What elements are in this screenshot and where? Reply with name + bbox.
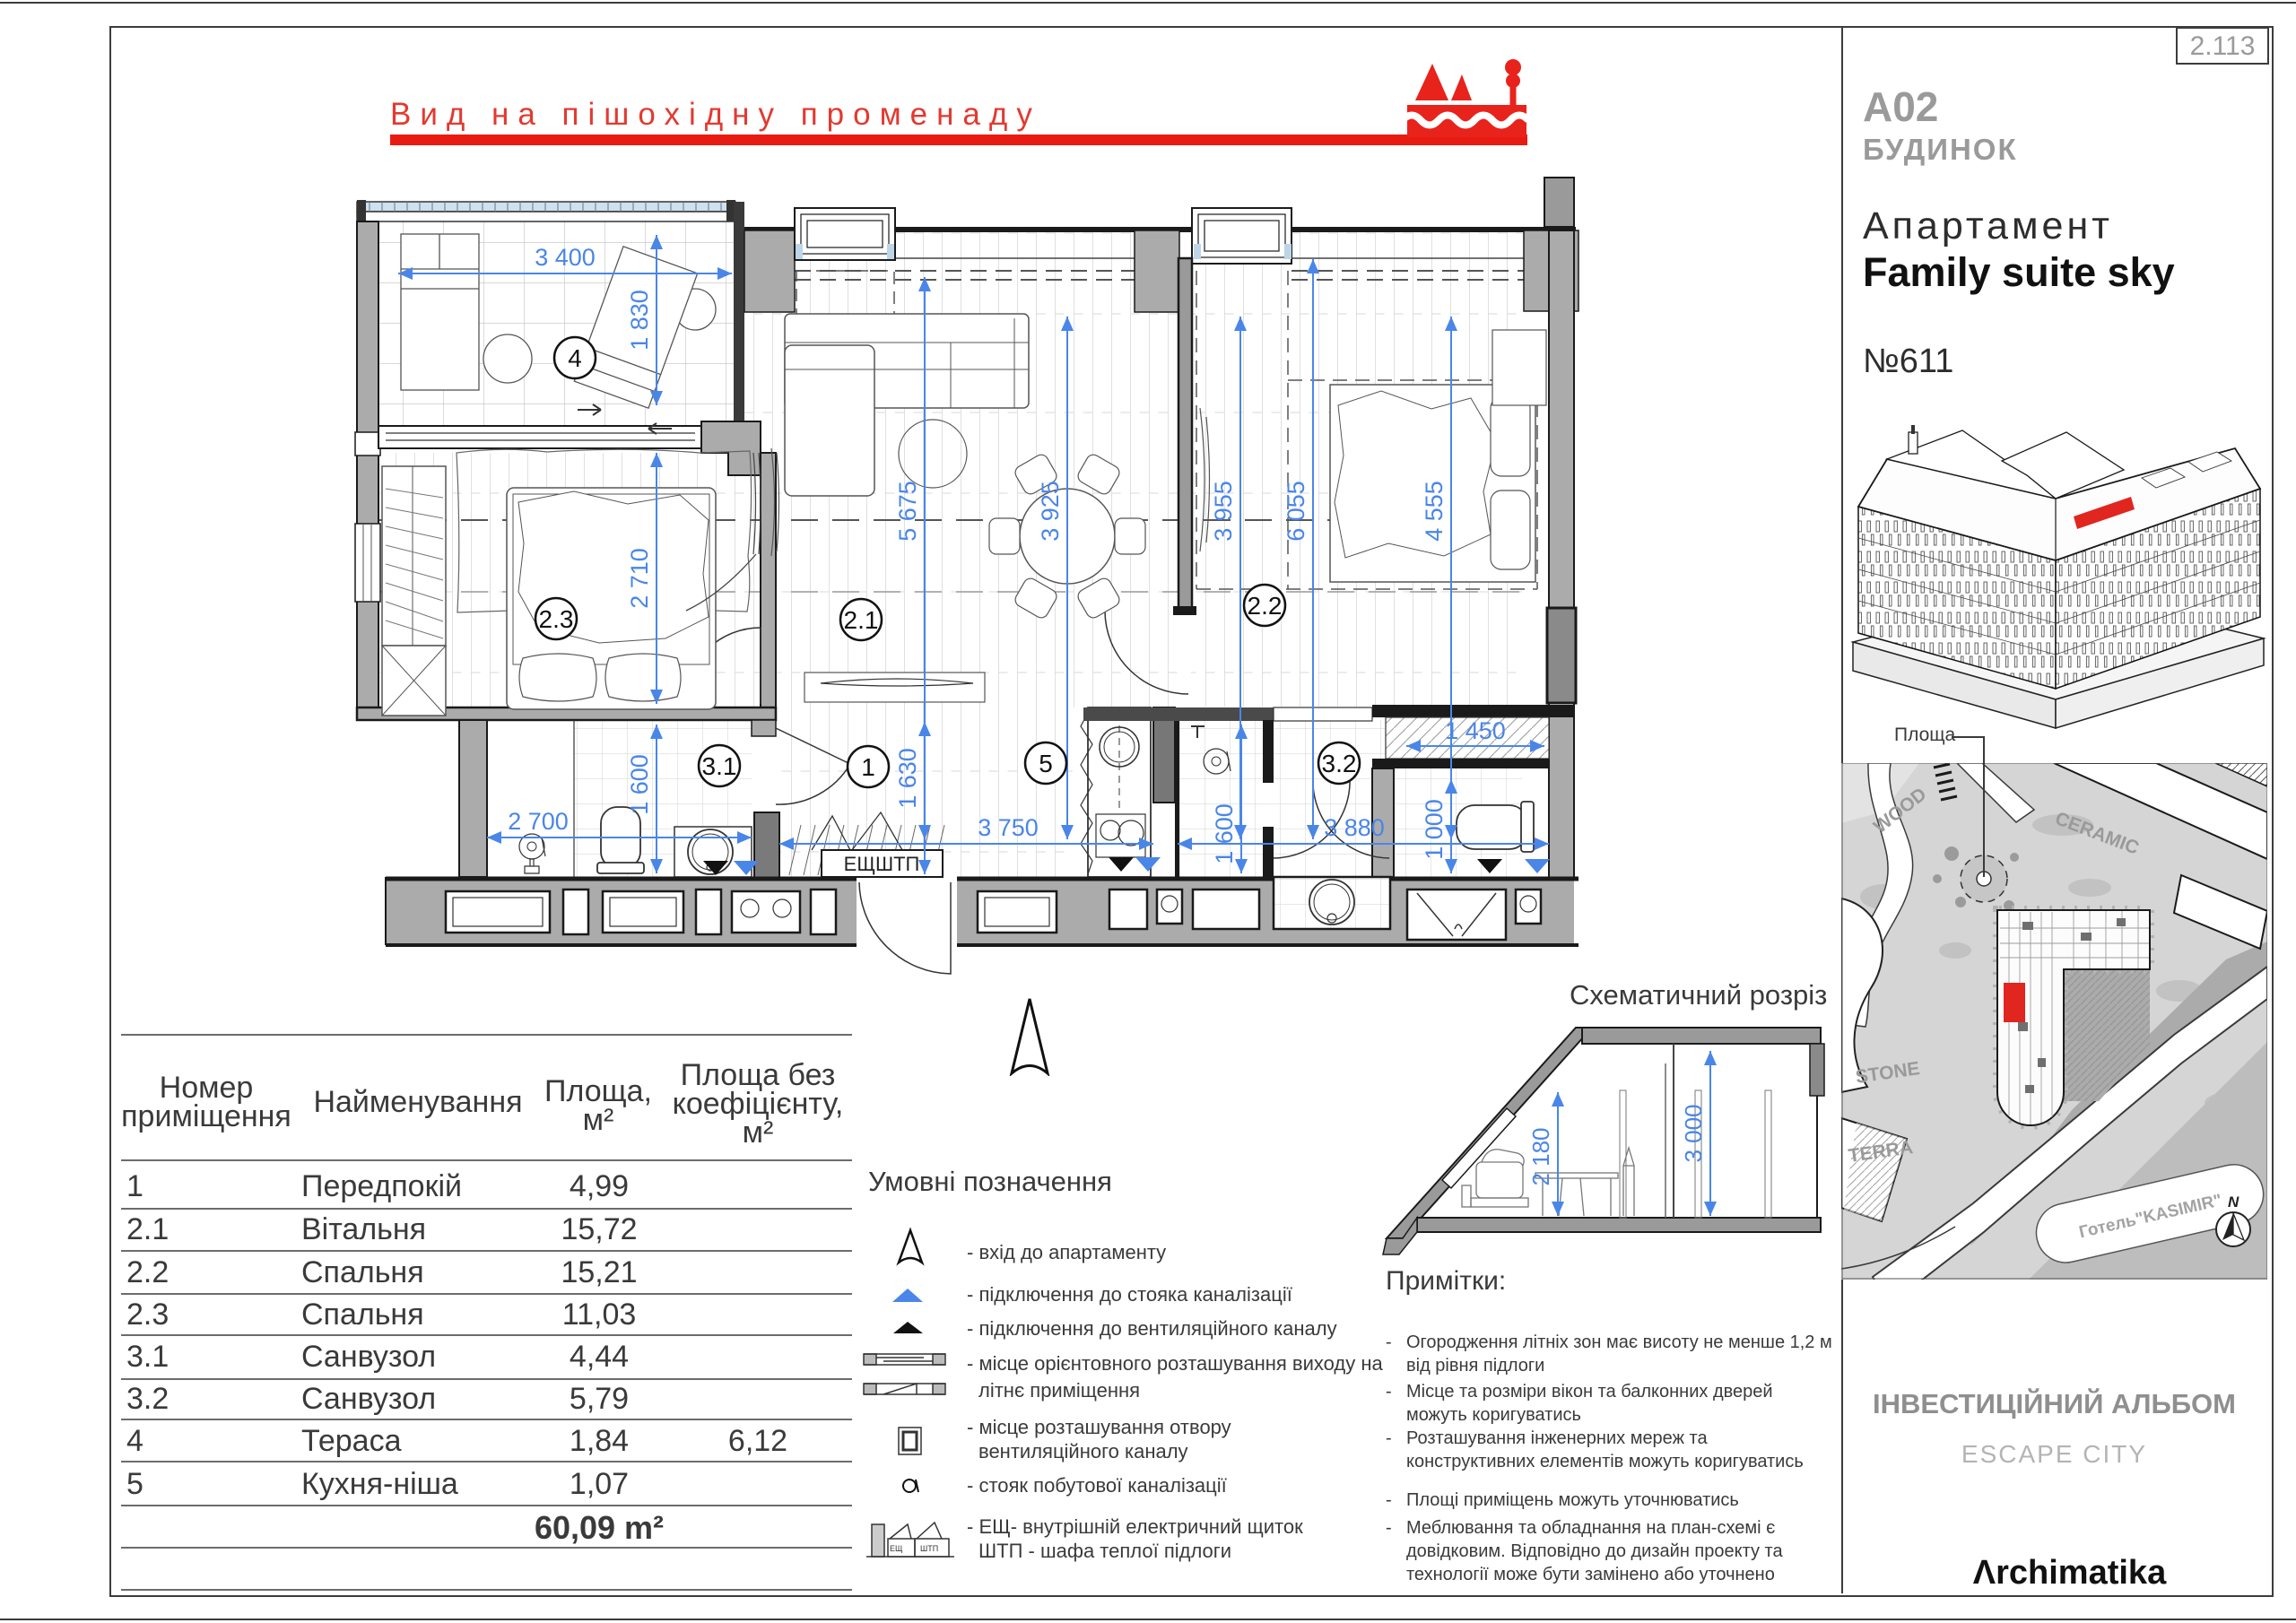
svg-text:15,72: 15,72: [561, 1212, 637, 1246]
svg-text:- підключення до вентиляційног: - підключення до вентиляційного каналу: [967, 1317, 1337, 1340]
svg-text:5 675: 5 675: [894, 481, 921, 542]
svg-text:3 750: 3 750: [978, 814, 1039, 841]
svg-text:4,99: 4,99: [570, 1169, 629, 1203]
svg-text:1 450: 1 450: [1445, 717, 1506, 744]
svg-text:15,21: 15,21: [561, 1255, 637, 1289]
svg-text:- підключення до стояка каналі: - підключення до стояка каналізації: [967, 1283, 1292, 1306]
svg-text:4 555: 4 555: [1421, 481, 1448, 542]
svg-text:1 600: 1 600: [626, 754, 653, 815]
svg-text:Тераса: Тераса: [301, 1424, 402, 1458]
svg-text:3 925: 3 925: [1037, 481, 1064, 542]
svg-text:Вітальня: Вітальня: [301, 1212, 426, 1246]
svg-text:1 000: 1 000: [1421, 799, 1448, 860]
svg-text:60,09 m²: 60,09 m²: [535, 1509, 664, 1546]
svg-text:1 600: 1 600: [1211, 803, 1238, 864]
svg-text:Найменування: Найменування: [313, 1085, 522, 1119]
svg-text:3 880: 3 880: [1324, 814, 1385, 841]
svg-text:1 830: 1 830: [626, 290, 653, 351]
svg-text:- місце розташування отвору: - місце розташування отвору: [967, 1416, 1231, 1438]
svg-text:2.2: 2.2: [1248, 592, 1283, 620]
svg-text:11,03: 11,03: [562, 1298, 637, 1332]
svg-text:2.3: 2.3: [539, 605, 574, 633]
svg-text:6,12: 6,12: [728, 1424, 787, 1458]
svg-text:ШТП: ШТП: [920, 1544, 938, 1553]
svg-text:літнє приміщення: літнє приміщення: [978, 1379, 1140, 1402]
svg-text:1: 1: [861, 753, 875, 781]
svg-text:1: 1: [126, 1169, 143, 1203]
svg-text:2 700: 2 700: [508, 808, 569, 835]
svg-text:5: 5: [126, 1467, 143, 1501]
svg-text:6 055: 6 055: [1283, 481, 1309, 542]
svg-text:вентиляційного каналу: вентиляційного каналу: [978, 1440, 1188, 1462]
svg-text:1,84: 1,84: [570, 1424, 629, 1458]
svg-text:м²: м²: [743, 1115, 774, 1150]
svg-text:5: 5: [1039, 750, 1053, 777]
svg-text:2.2: 2.2: [126, 1255, 169, 1289]
svg-text:3 400: 3 400: [535, 244, 596, 271]
svg-text:3.1: 3.1: [702, 752, 737, 780]
svg-text:ЕЩШТП: ЕЩШТП: [844, 853, 920, 875]
svg-text:ЕЩ: ЕЩ: [890, 1544, 903, 1553]
svg-text:приміщення: приміщення: [121, 1099, 291, 1133]
svg-text:4,44: 4,44: [570, 1340, 629, 1374]
svg-text:ШТП - шафа теплої підлоги: ШТП - шафа теплої підлоги: [978, 1540, 1231, 1562]
svg-text:Санвузол: Санвузол: [301, 1340, 436, 1374]
svg-text:- вхід до апартаменту: - вхід до апартаменту: [967, 1241, 1166, 1263]
svg-text:3.2: 3.2: [126, 1382, 169, 1416]
svg-text:1 630: 1 630: [894, 748, 921, 809]
svg-text:4: 4: [126, 1424, 143, 1458]
svg-text:Санвузол: Санвузол: [301, 1382, 436, 1416]
svg-text:2.1: 2.1: [844, 606, 879, 634]
svg-text:3.1: 3.1: [126, 1340, 169, 1374]
svg-text:5,79: 5,79: [570, 1382, 629, 1416]
svg-text:Спальня: Спальня: [301, 1255, 424, 1289]
svg-text:3 000: 3 000: [1680, 1104, 1707, 1162]
svg-text:Кухня-ніша: Кухня-ніша: [301, 1467, 458, 1501]
svg-text:- місце орієнтовного розташува: - місце орієнтовного розташування виходу…: [967, 1352, 1384, 1375]
svg-text:2.3: 2.3: [126, 1298, 169, 1332]
svg-text:4: 4: [568, 344, 582, 372]
svg-text:1,07: 1,07: [570, 1467, 629, 1501]
svg-text:2 180: 2 180: [1527, 1127, 1554, 1185]
svg-text:- стояк побутової каналізації: - стояк побутової каналізації: [967, 1474, 1227, 1497]
svg-text:Передпокій: Передпокій: [301, 1169, 462, 1203]
svg-text:3 955: 3 955: [1210, 481, 1237, 542]
svg-text:- ЕЩ- внутрішній електричний щ: - ЕЩ- внутрішній електричний щиток: [967, 1515, 1303, 1538]
svg-text:N: N: [2228, 1193, 2239, 1211]
svg-text:3.2: 3.2: [1322, 750, 1357, 777]
svg-text:Спальня: Спальня: [301, 1298, 424, 1332]
svg-text:м²: м²: [583, 1103, 614, 1137]
svg-text:2 710: 2 710: [626, 548, 653, 609]
svg-text:2.1: 2.1: [126, 1212, 169, 1246]
